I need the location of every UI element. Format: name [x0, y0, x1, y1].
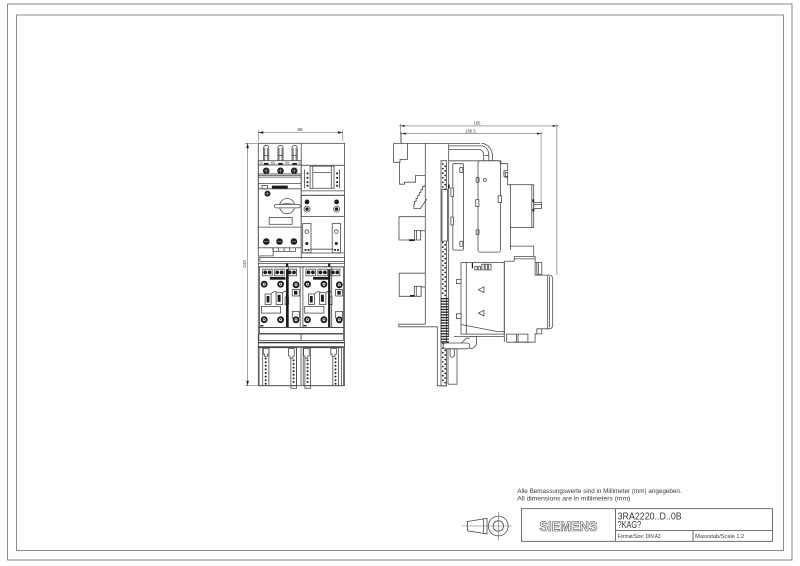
svg-text:160.5: 160.5 [465, 128, 476, 133]
svg-text:All dimensions are in millimet: All dimensions are in millimeters (mm) [517, 497, 630, 503]
svg-text:243: 243 [242, 260, 247, 268]
svg-text:Massstab/Scale 1:2: Massstab/Scale 1:2 [695, 534, 744, 540]
svg-text:Format/Size: DIN A3: Format/Size: DIN A3 [618, 534, 661, 540]
svg-text:Alle Bemassungswerte sind in M: Alle Bemassungswerte sind in Millimeter … [517, 489, 682, 495]
svg-text:165: 165 [474, 121, 482, 126]
svg-text:?KAG?: ?KAG? [618, 519, 642, 531]
svg-text:SIEMENS: SIEMENS [540, 519, 598, 534]
svg-text:98: 98 [297, 127, 303, 132]
